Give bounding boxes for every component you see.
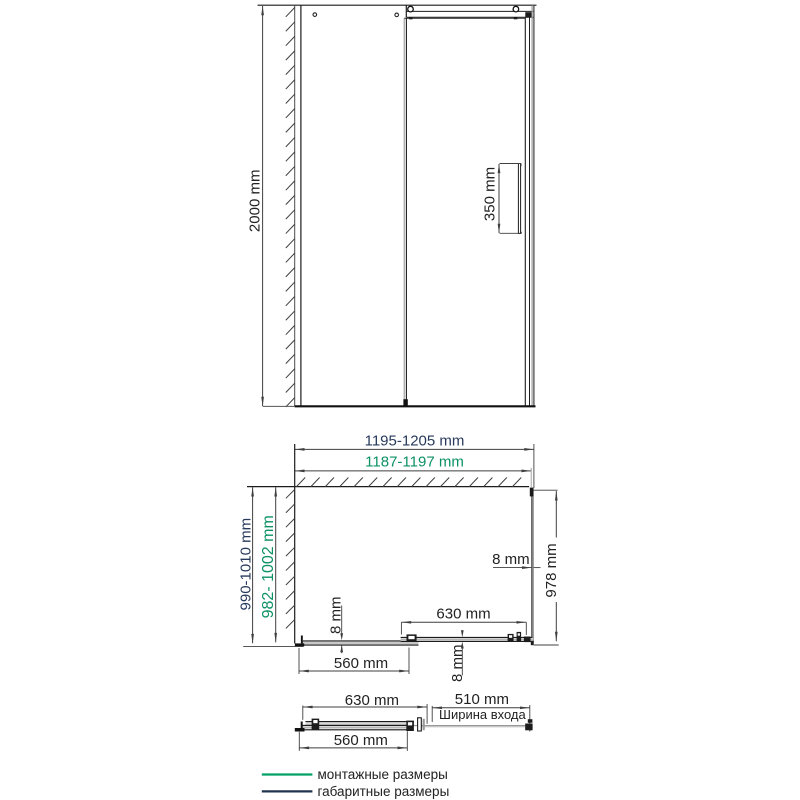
svg-text:630 mm: 630 mm	[345, 692, 399, 709]
svg-text:560 mm: 560 mm	[334, 655, 388, 672]
svg-text:990-1010 mm: 990-1010 mm	[238, 518, 255, 611]
svg-text:560 mm: 560 mm	[334, 732, 388, 749]
svg-text:Ширина входа: Ширина входа	[439, 707, 526, 722]
svg-text:8 mm: 8 mm	[449, 645, 466, 683]
svg-text:1187-1197 mm: 1187-1197 mm	[365, 454, 464, 471]
svg-text:978 mm: 978 mm	[543, 543, 560, 597]
svg-text:монтажные размеры: монтажные размеры	[318, 767, 448, 782]
svg-text:габаритные размеры: габаритные размеры	[318, 784, 450, 799]
svg-text:8 mm: 8 mm	[492, 551, 530, 568]
svg-text:350 mm: 350 mm	[481, 167, 498, 221]
svg-text:510 mm: 510 mm	[455, 691, 509, 708]
svg-text:2000 mm: 2000 mm	[247, 170, 264, 233]
svg-text:8 mm: 8 mm	[328, 596, 345, 634]
svg-text:982- 1002 mm: 982- 1002 mm	[260, 515, 277, 618]
svg-text:1195-1205 mm: 1195-1205 mm	[365, 433, 465, 450]
svg-text:630 mm: 630 mm	[436, 606, 490, 623]
